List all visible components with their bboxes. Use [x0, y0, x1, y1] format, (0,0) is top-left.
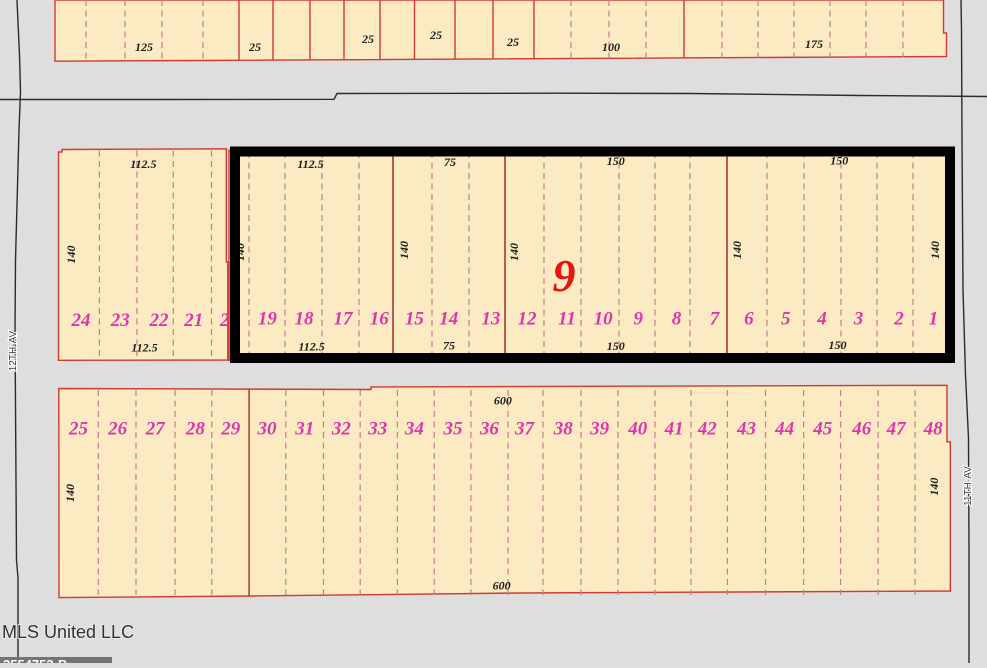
svg-text:16: 16: [370, 309, 390, 330]
svg-text:140: 140: [507, 243, 521, 261]
svg-text:175: 175: [805, 37, 823, 51]
svg-text:MLS United LLC: MLS United LLC: [2, 622, 134, 642]
svg-text:150: 150: [829, 338, 847, 352]
svg-text:3: 3: [853, 309, 864, 330]
svg-text:29: 29: [220, 419, 241, 440]
svg-text:112.5: 112.5: [131, 341, 157, 355]
svg-text:43: 43: [736, 419, 756, 440]
svg-text:36: 36: [479, 419, 500, 440]
svg-text:1: 1: [929, 309, 939, 330]
svg-text:75: 75: [443, 338, 455, 352]
svg-text:44: 44: [774, 419, 794, 440]
svg-text:3554753-B: 3554753-B: [3, 657, 67, 663]
svg-text:46: 46: [851, 419, 872, 440]
svg-text:9: 9: [633, 309, 643, 330]
svg-text:14: 14: [439, 309, 458, 330]
svg-text:38: 38: [553, 419, 574, 440]
svg-text:140: 140: [730, 241, 744, 259]
svg-text:21: 21: [183, 310, 203, 331]
svg-text:600: 600: [493, 579, 511, 593]
svg-text:4: 4: [816, 309, 827, 330]
svg-text:12: 12: [518, 309, 538, 330]
svg-text:6: 6: [744, 309, 754, 330]
svg-text:45: 45: [812, 419, 833, 440]
svg-text:12TH-AV: 12TH-AV: [8, 330, 19, 371]
svg-text:140: 140: [397, 241, 411, 259]
svg-text:2: 2: [893, 309, 904, 330]
svg-text:24: 24: [71, 310, 91, 331]
svg-text:26: 26: [107, 419, 128, 440]
svg-text:8: 8: [672, 309, 682, 330]
svg-text:19: 19: [258, 309, 278, 330]
svg-text:42: 42: [697, 419, 718, 440]
svg-text:48: 48: [923, 419, 944, 440]
svg-text:25: 25: [361, 32, 374, 46]
svg-text:125: 125: [135, 40, 153, 54]
svg-text:18: 18: [295, 309, 315, 330]
svg-text:33: 33: [367, 419, 387, 440]
svg-text:140: 140: [64, 246, 78, 264]
svg-text:13: 13: [481, 309, 500, 330]
svg-text:25: 25: [506, 35, 519, 49]
svg-text:22: 22: [149, 310, 170, 331]
svg-text:7: 7: [710, 309, 721, 330]
svg-text:5: 5: [781, 309, 791, 330]
svg-text:150: 150: [607, 339, 625, 353]
svg-text:140: 140: [927, 478, 941, 496]
svg-text:9: 9: [553, 250, 576, 301]
svg-text:140: 140: [928, 241, 942, 259]
svg-text:25: 25: [68, 419, 89, 440]
svg-text:34: 34: [404, 419, 424, 440]
svg-text:11: 11: [558, 309, 576, 330]
svg-text:35: 35: [443, 419, 464, 440]
svg-text:75: 75: [444, 155, 456, 169]
svg-text:39: 39: [589, 419, 610, 440]
svg-text:112.5: 112.5: [297, 157, 323, 171]
svg-text:31: 31: [294, 419, 314, 440]
svg-text:41: 41: [664, 419, 684, 440]
svg-text:47: 47: [886, 419, 908, 440]
svg-text:32: 32: [331, 419, 352, 440]
svg-text:25: 25: [429, 28, 442, 42]
svg-text:28: 28: [185, 419, 206, 440]
svg-text:30: 30: [257, 419, 278, 440]
svg-text:15: 15: [405, 309, 425, 330]
svg-text:600: 600: [494, 394, 512, 408]
svg-text:140: 140: [63, 484, 77, 502]
svg-text:37: 37: [514, 419, 536, 440]
svg-text:100: 100: [602, 40, 620, 54]
svg-text:112.5: 112.5: [130, 157, 156, 171]
svg-text:112.5: 112.5: [298, 340, 324, 354]
svg-text:40: 40: [627, 419, 648, 440]
svg-text:25: 25: [248, 40, 261, 54]
svg-text:23: 23: [110, 310, 130, 331]
svg-text:27: 27: [145, 419, 167, 440]
svg-text:17: 17: [334, 309, 355, 330]
svg-text:10: 10: [594, 309, 614, 330]
svg-text:11TH-AV: 11TH-AV: [963, 466, 974, 506]
